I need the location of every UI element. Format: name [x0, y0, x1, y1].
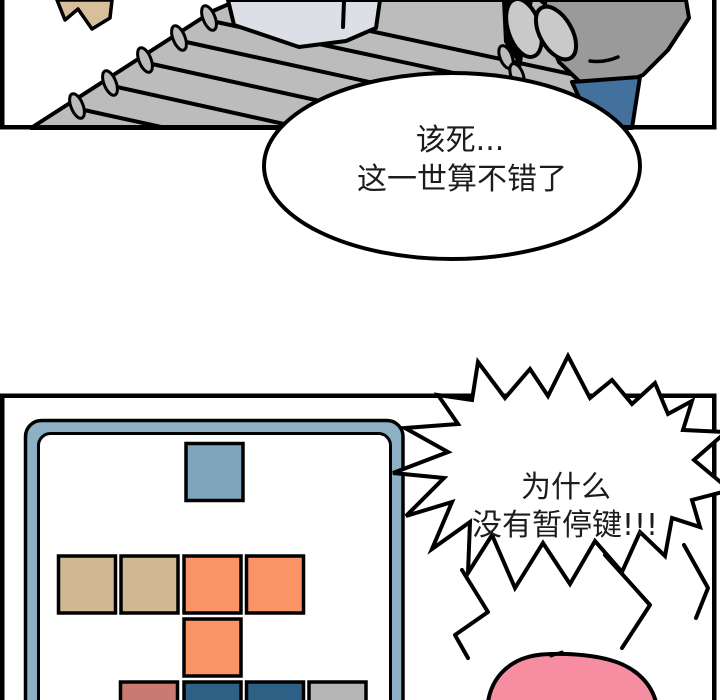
tetris-block-gray [309, 682, 366, 700]
shout-bubble-line2: 没有暂停键!!! [472, 508, 658, 543]
comic-page: 该死... 这一世算不错了 为什么 没有暂停键!!! [0, 0, 720, 700]
big-key-stem [343, 1, 344, 27]
tetris-block-tan [59, 556, 116, 613]
tetris-block-orange [184, 619, 241, 676]
tetris-block-navy [247, 682, 304, 700]
tetris-block-navy [184, 682, 241, 700]
tetris-block-orange [247, 556, 304, 613]
tetris-block-orange [184, 556, 241, 613]
speech-bubble-1-line2: 这一世算不错了 [357, 162, 567, 197]
speech-bubble-1: 该死... 这一世算不错了 [264, 73, 640, 259]
shout-bubble-line1: 为什么 [521, 470, 611, 505]
tetris-block-red [121, 682, 178, 700]
speech-bubble-1-line1: 该死... [416, 123, 505, 158]
tetris-block-tan [121, 556, 178, 613]
tetris-block-blue [186, 444, 243, 501]
